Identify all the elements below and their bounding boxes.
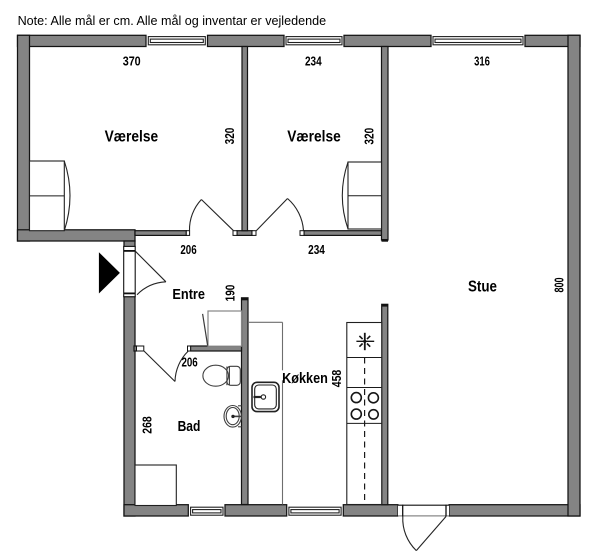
svg-text:190: 190 (224, 285, 238, 302)
svg-text:Værelse: Værelse (287, 129, 341, 146)
svg-text:Værelse: Værelse (105, 129, 159, 146)
svg-text:206: 206 (180, 243, 196, 257)
svg-text:370: 370 (123, 54, 141, 68)
svg-text:320: 320 (363, 128, 377, 145)
svg-text:234: 234 (305, 54, 322, 68)
svg-text:316: 316 (474, 54, 490, 68)
svg-text:800: 800 (552, 277, 566, 292)
svg-text:Køkken: Køkken (282, 370, 328, 387)
svg-text:Bad: Bad (178, 418, 201, 435)
svg-text:320: 320 (223, 128, 237, 145)
svg-text:234: 234 (308, 243, 325, 257)
svg-text:Note: Alle mål er cm. Alle mål: Note: Alle mål er cm. Alle mål og invent… (18, 13, 327, 28)
svg-text:458: 458 (330, 370, 344, 388)
svg-text:206: 206 (181, 356, 197, 370)
svg-text:Stue: Stue (468, 279, 497, 296)
svg-text:Entre: Entre (172, 286, 205, 303)
svg-text:268: 268 (141, 416, 155, 433)
